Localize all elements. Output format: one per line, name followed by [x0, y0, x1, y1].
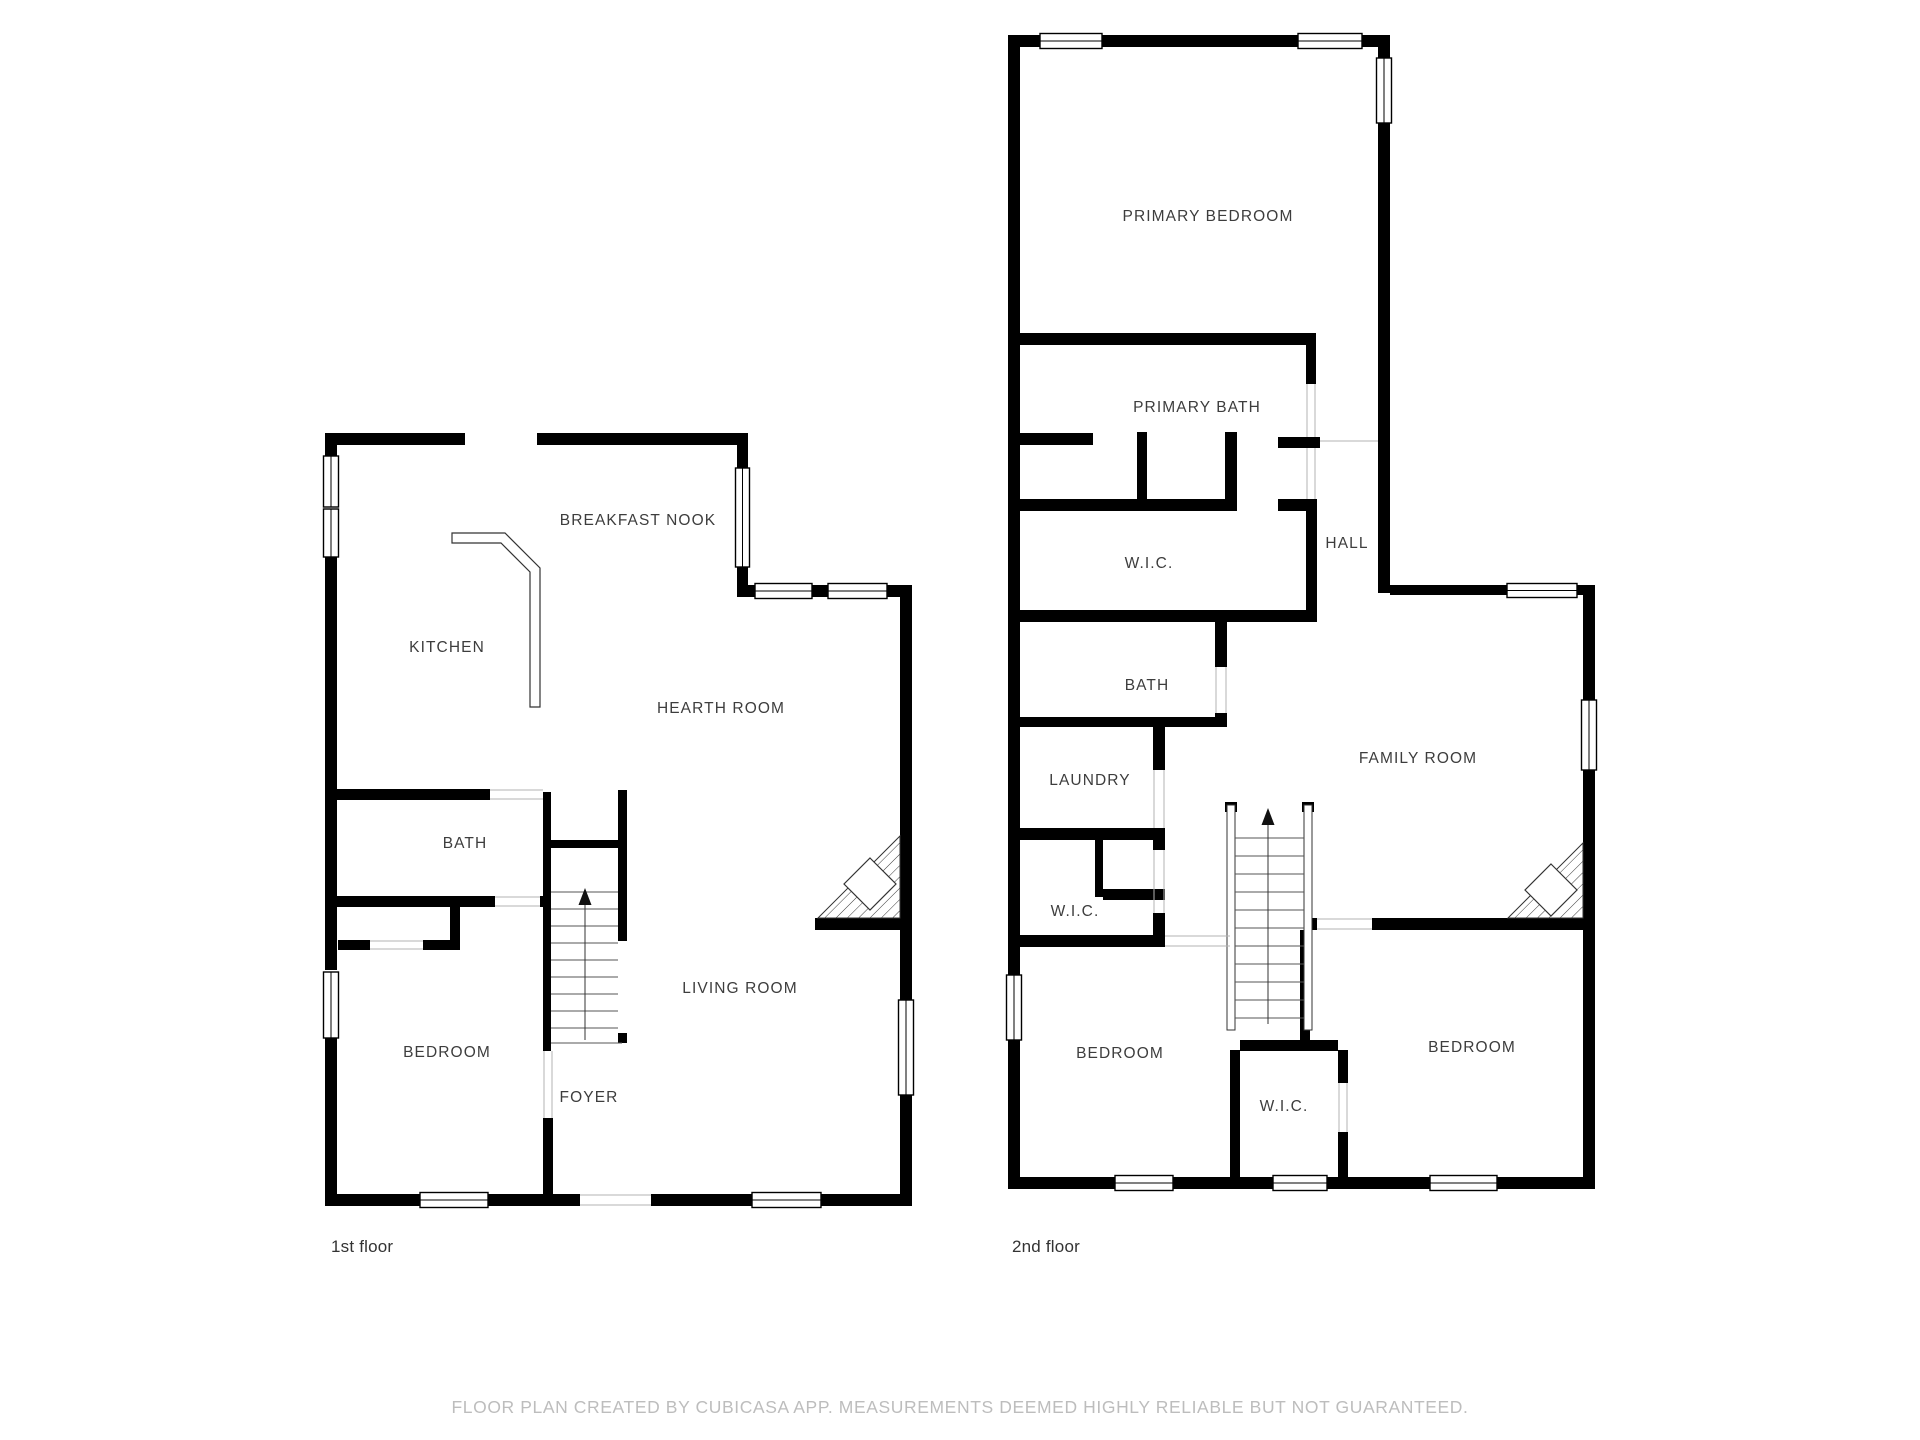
kitchen-counter: [452, 533, 540, 707]
room-label-breakfast-nook: BREAKFAST NOOK: [560, 512, 716, 529]
staircase-icon: [551, 888, 622, 1043]
door-openings: [1154, 384, 1378, 1132]
disclaimer-text: FLOOR PLAN CREATED BY CUBICASA APP. MEAS…: [451, 1397, 1468, 1417]
fireplace-icon: [1508, 843, 1583, 918]
room-label-hall: HALL: [1325, 535, 1368, 552]
room-label-bath-1: BATH: [443, 835, 488, 852]
room-label-living-room: LIVING ROOM: [682, 980, 797, 997]
second-floor-plan: PRIMARY BEDROOM PRIMARY BATH W.I.C. HALL…: [1007, 34, 1597, 1257]
room-label-primary-bath: PRIMARY BATH: [1133, 399, 1261, 416]
room-label-bedroom-1: BEDROOM: [403, 1044, 491, 1061]
room-label-wic-primary: W.I.C.: [1125, 555, 1174, 572]
stairs-up-arrow-icon: [579, 888, 592, 905]
stairs-up-arrow-icon: [1262, 808, 1275, 825]
room-label-foyer: FOYER: [560, 1089, 619, 1106]
room-label-bath-2: BATH: [1125, 677, 1170, 694]
room-label-hearth-room: HEARTH ROOM: [657, 700, 785, 717]
room-label-family-room: FAMILY ROOM: [1359, 750, 1477, 767]
floor-label-2nd: 2nd floor: [1012, 1237, 1080, 1256]
fireplace-icon: [818, 836, 900, 918]
floor-plan-page: BREAKFAST NOOK KITCHEN HEARTH ROOM BATH …: [0, 0, 1920, 1440]
room-label-primary-bedroom: PRIMARY BEDROOM: [1123, 208, 1294, 225]
room-label-wic-small: W.I.C.: [1051, 903, 1100, 920]
room-label-kitchen: KITCHEN: [409, 639, 485, 656]
door-openings: [370, 790, 651, 1205]
interior-walls: [337, 789, 900, 1194]
room-label-laundry: LAUNDRY: [1049, 772, 1131, 789]
room-label-wic-bottom: W.I.C.: [1260, 1098, 1309, 1115]
floor-plan-drawing: BREAKFAST NOOK KITCHEN HEARTH ROOM BATH …: [0, 0, 1920, 1440]
room-label-bedroom-3: BEDROOM: [1428, 1039, 1516, 1056]
floor-label-1st: 1st floor: [331, 1237, 393, 1256]
room-label-bedroom-2: BEDROOM: [1076, 1045, 1164, 1062]
first-floor-plan: BREAKFAST NOOK KITCHEN HEARTH ROOM BATH …: [324, 433, 914, 1256]
